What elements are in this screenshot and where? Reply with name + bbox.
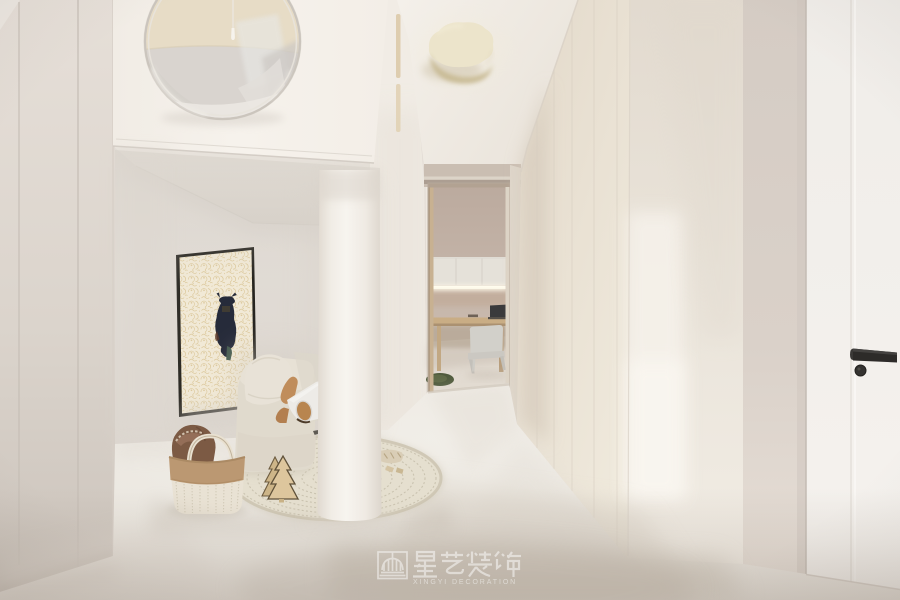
svg-text:XINGYI DECORATION: XINGYI DECORATION	[413, 579, 517, 586]
